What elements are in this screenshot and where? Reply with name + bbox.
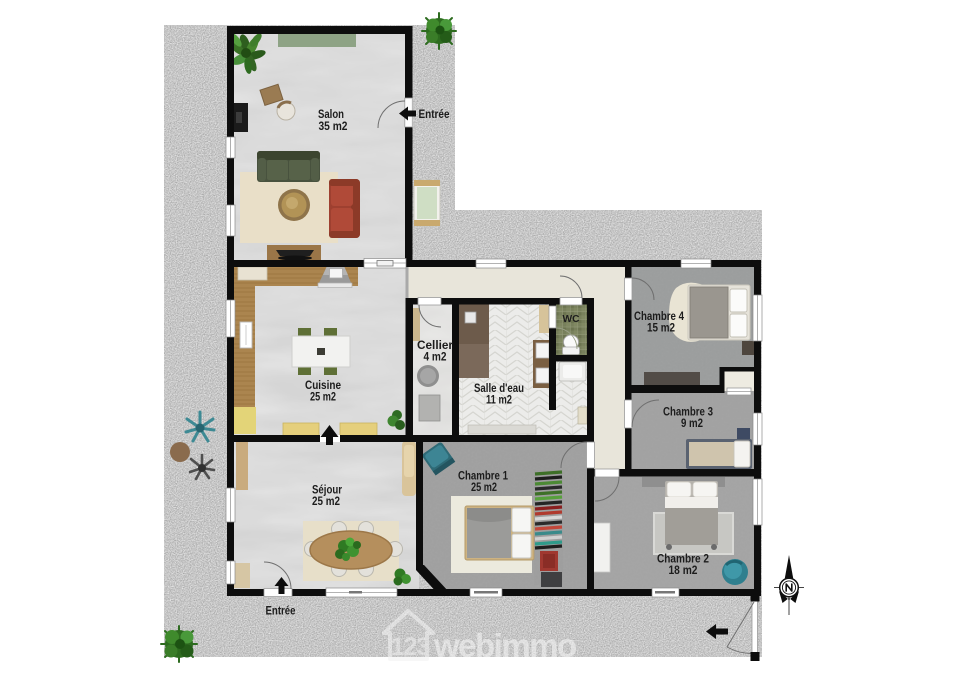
- svg-text:webimmo: webimmo: [433, 627, 576, 664]
- svg-text:11 m2: 11 m2: [486, 393, 512, 407]
- svg-text:4 m2: 4 m2: [424, 350, 447, 364]
- svg-text:123: 123: [391, 633, 430, 661]
- svg-text:35 m2: 35 m2: [319, 119, 348, 133]
- svg-text:15 m2: 15 m2: [647, 321, 675, 335]
- svg-text:Entrée: Entrée: [419, 107, 450, 121]
- svg-text:Entrée: Entrée: [266, 604, 296, 618]
- svg-text:25 m2: 25 m2: [312, 494, 340, 508]
- svg-text:WC: WC: [563, 313, 580, 325]
- svg-text:25 m2: 25 m2: [471, 480, 497, 494]
- svg-text:18 m2: 18 m2: [669, 563, 698, 577]
- svg-text:25 m2: 25 m2: [310, 390, 336, 404]
- svg-text:9 m2: 9 m2: [681, 416, 703, 430]
